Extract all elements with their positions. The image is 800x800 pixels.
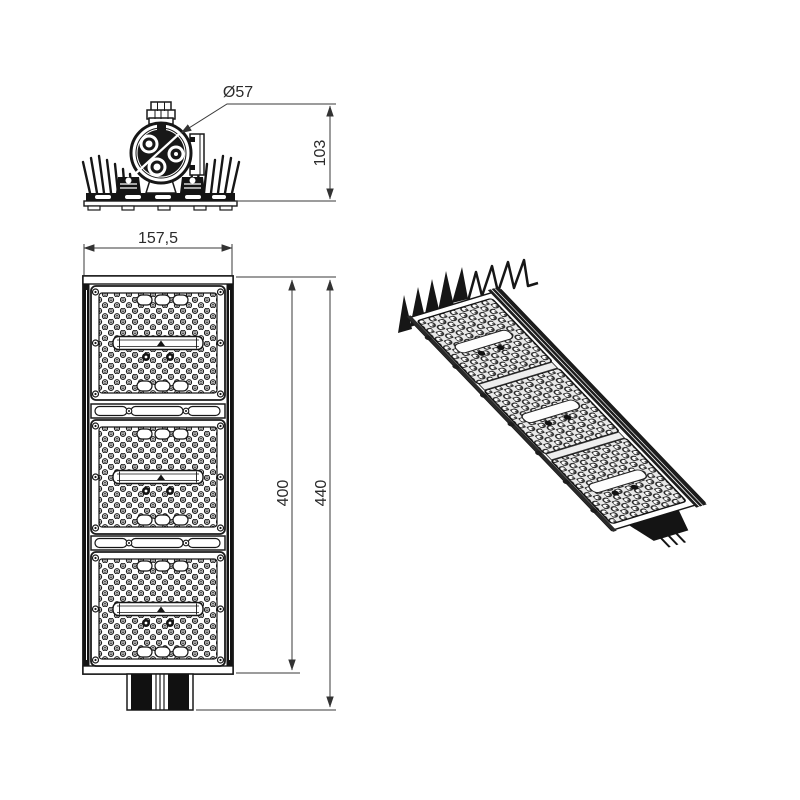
isometric-view-drawing [398,260,730,558]
dimension-overall-length-label: 440 [313,480,330,507]
led-module-3 [91,552,225,666]
led-module-2 [91,420,225,534]
dimension-height-label: 103 [312,140,329,167]
dimension-diameter-label: Ø57 [223,84,253,101]
panel-top-cap [83,276,233,284]
iso-led-modules [417,298,686,524]
luminaire-drawing: Ø57 103 157,5 400 440 [0,0,800,800]
panel-bottom-cap [83,666,233,674]
base-lip [84,201,237,206]
dimension-panel-length-label: 400 [275,480,292,507]
dimension-width-label: 157,5 [138,230,178,247]
led-module-1 [91,286,225,400]
technical-drawing-page: Ø57 103 157,5 400 440 [0,0,800,800]
module-separator-2 [91,536,225,550]
front-view-drawing [83,102,239,210]
plan-view-drawing [83,276,233,710]
module-separator-1 [91,404,225,418]
pole-mount-stub [127,674,193,710]
diameter-leader-line [181,104,336,133]
